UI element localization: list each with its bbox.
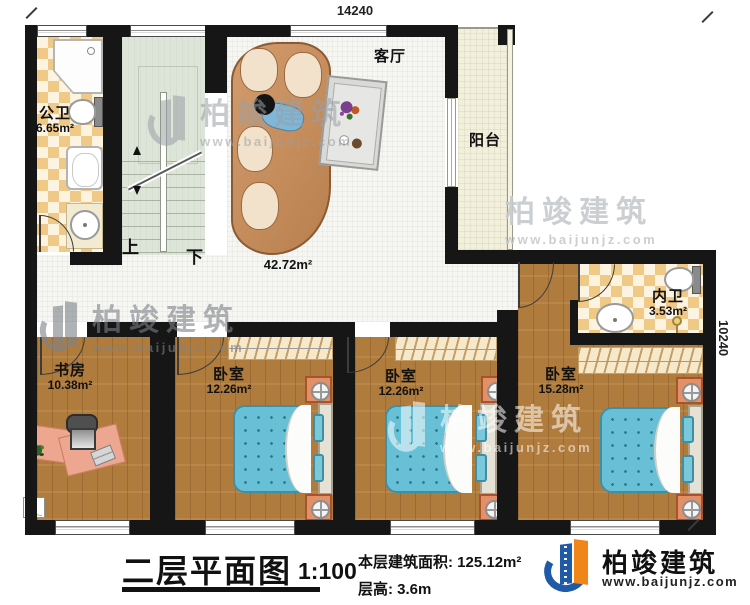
vanity-cabinet [66, 146, 103, 190]
dimension-tick [701, 11, 713, 23]
stair-up-arrow [133, 146, 141, 155]
bed-pillow [313, 454, 324, 482]
window [130, 25, 207, 37]
room-label-living: 客厅 [362, 48, 418, 65]
room-name: 阳台 [457, 132, 513, 149]
wall-balcony-left [445, 25, 458, 98]
plan-title: 二层平面图 [122, 546, 292, 592]
room-name: 内卫 [640, 288, 696, 305]
sofa-cushion [284, 52, 322, 98]
plant-pot-icon [682, 500, 701, 519]
door-leaf [578, 264, 580, 302]
bed-pillow [682, 416, 693, 444]
room-name: 公卫 [32, 105, 78, 122]
dimension-top: 14240 [315, 3, 395, 18]
room-area: 12.26m² [196, 383, 262, 397]
door-leaf [347, 337, 349, 373]
room-name: 书房 [38, 362, 102, 379]
wall-inner-bath-bottom [570, 333, 703, 345]
wall-right-outer [703, 250, 716, 535]
floor-plan-page: 上 下 [0, 0, 750, 605]
plan-title-underline [122, 587, 320, 592]
door-leaf [518, 262, 520, 308]
inner-washbasin-drain [613, 318, 617, 322]
brand-logo-icon [544, 538, 598, 594]
sofa-cushion [240, 48, 278, 92]
washbasin-drain [83, 223, 87, 227]
room-area-living: 42.72m² [258, 258, 318, 273]
room-label-balcony: 阳台 [457, 132, 513, 149]
door-leaf [177, 337, 179, 375]
person-head [254, 94, 275, 115]
room-area: 10.38m² [38, 379, 102, 393]
monitor [70, 428, 96, 450]
wall-study-bedroom1 [150, 322, 175, 535]
stair-down-label: 下 [186, 248, 203, 268]
stair-down-arrow [133, 186, 141, 195]
bedroom3-bed [600, 407, 703, 493]
nightstand [305, 494, 332, 521]
plant-pot-icon [311, 500, 330, 519]
wall-bath-bottom [70, 252, 103, 265]
window [390, 520, 475, 535]
bed-pillow [682, 455, 693, 483]
stair-up-label: 上 [122, 238, 139, 258]
window [37, 25, 87, 37]
window [570, 520, 660, 535]
room-name: 卧室 [368, 368, 434, 385]
room-name: 客厅 [362, 48, 418, 65]
dimension-right: 10240 [716, 320, 731, 356]
nightstand [676, 377, 703, 404]
window [55, 520, 130, 535]
room-area: 42.72m² [258, 258, 318, 273]
bed-pillow [313, 414, 324, 442]
wall-hallway [227, 322, 347, 337]
room-label-bedroom3: 卧室 15.28m² [528, 366, 594, 397]
bedroom1-bed [233, 405, 333, 493]
watermark-url: www.baijunjz.com [505, 232, 657, 247]
room-label-public-bath: 公卫 6.65m² [32, 105, 78, 136]
room-area: 12.26m² [368, 385, 434, 399]
wall-inner-bath-left [570, 300, 578, 333]
plan-scale: 1:100 [298, 558, 357, 585]
wall-bedroom2-bedroom3 [497, 310, 518, 535]
watermark: 柏竣建筑 www.baijunjz.com [505, 198, 657, 247]
door-leaf [39, 215, 41, 252]
plant-pot-icon [682, 383, 701, 402]
room-label-bedroom2: 卧室 12.26m² [368, 368, 434, 399]
sofa-cushion [241, 182, 279, 230]
brand-website: www.baijunjz.com [602, 574, 738, 589]
washbasin [70, 210, 100, 240]
room-name: 卧室 [528, 366, 594, 383]
plant-pot-icon [311, 382, 330, 401]
plan-floor-height: 层高: 3.6m [358, 578, 431, 599]
wardrobe [395, 336, 497, 361]
room-label-study: 书房 10.38m² [38, 362, 102, 393]
room-name: 卧室 [196, 366, 262, 383]
wardrobe [578, 347, 703, 374]
window [290, 25, 387, 37]
shower-drain-icon [87, 47, 95, 55]
wall-left-outer [25, 25, 37, 535]
room-area: 3.53m² [640, 305, 696, 319]
room-label-inner-bath: 内卫 3.53m² [640, 288, 696, 319]
wall-balcony-left [445, 187, 458, 250]
vanity-basin [72, 153, 99, 187]
bed-pillow [475, 454, 487, 482]
window [205, 520, 295, 535]
room-area: 15.28m² [528, 383, 594, 397]
balcony-sliding-door [447, 98, 456, 187]
dimension-tick [25, 7, 37, 19]
bed-pillow [475, 414, 487, 442]
sofa-cushion [237, 126, 273, 172]
room-area: 6.65m² [32, 122, 78, 136]
watermark-name: 柏竣建筑 [505, 196, 653, 229]
wall-bedroom2-bedroom3 [497, 250, 518, 262]
bedroom2-bed [385, 405, 497, 493]
wardrobe [228, 334, 333, 360]
coffee-table [318, 75, 387, 171]
plan-area-info: 本层建筑面积: 125.12m² [358, 551, 521, 572]
nightstand [305, 376, 332, 403]
room-label-bedroom1: 卧室 12.26m² [196, 366, 262, 397]
coffee-table-top [326, 83, 382, 166]
inner-washbasin [596, 303, 634, 333]
wall-bath-stairs [103, 25, 122, 265]
wall-stairs-living [205, 25, 227, 93]
nightstand [676, 494, 703, 521]
